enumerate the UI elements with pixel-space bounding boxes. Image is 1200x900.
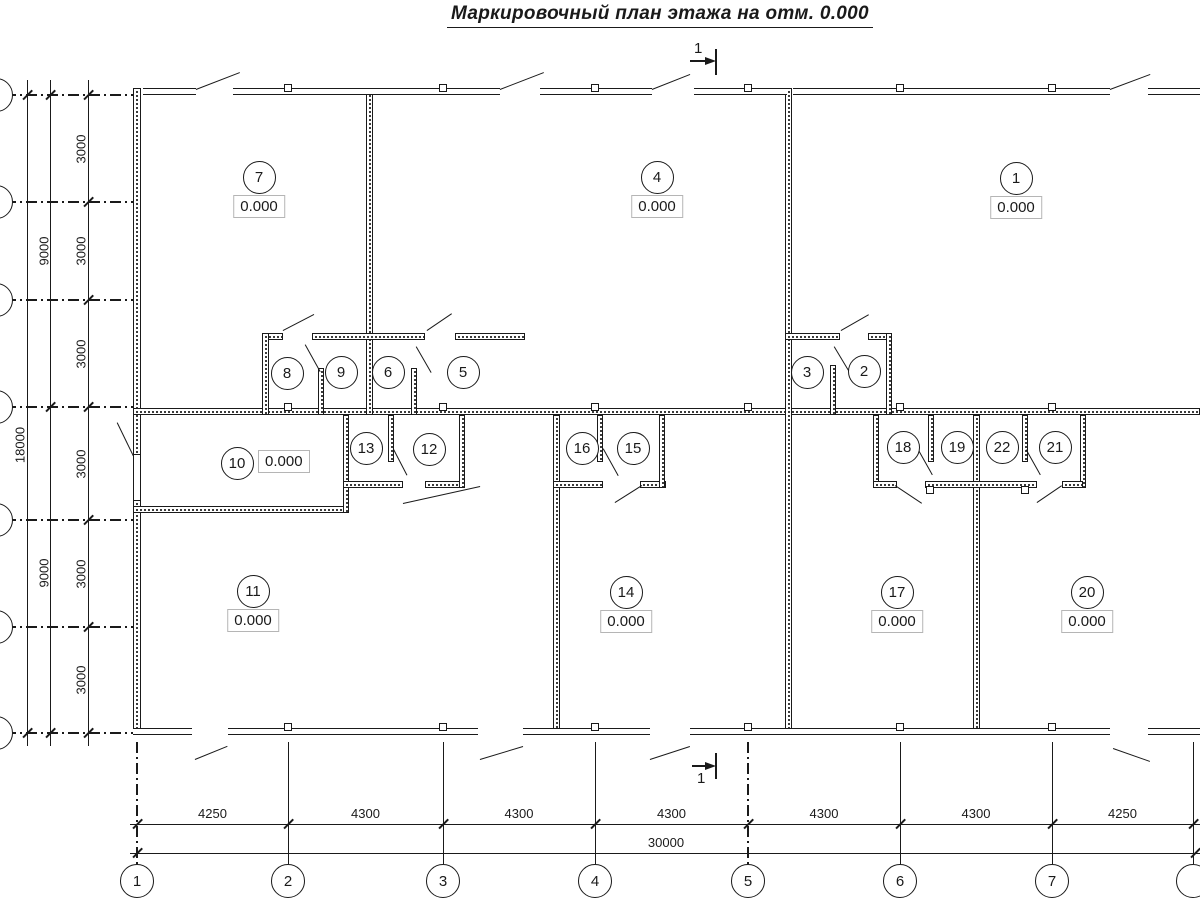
window-segment (133, 455, 141, 500)
row-axis-bubble-cut (0, 78, 13, 112)
wall-tie-square (439, 403, 447, 411)
window-segment (1148, 728, 1200, 735)
room-10-number-circle: 10 (221, 447, 254, 480)
wall-segment (366, 88, 373, 415)
section-mark-bottom-label: 1 (697, 770, 705, 787)
grid-row-line (5, 299, 133, 300)
dimension-label: 3000 (74, 449, 89, 478)
grid-row-line (5, 519, 133, 520)
dimension-label: 3000 (74, 237, 89, 266)
axis-line (595, 742, 596, 864)
axis-line (288, 742, 289, 864)
wall-segment (459, 415, 465, 488)
door-swing-line (1037, 485, 1063, 503)
dimension-label: 3000 (74, 559, 89, 588)
room-20-elevation: 0.000 (1061, 610, 1113, 633)
axis-bubble-1: 1 (120, 864, 154, 898)
row-axis-bubble-cut (0, 716, 13, 750)
wall-segment (873, 415, 879, 488)
room-7-number-circle: 7 (243, 161, 276, 194)
axis-line (136, 742, 137, 864)
dimension-total-label: 18000 (13, 427, 28, 463)
axis-line (747, 742, 748, 864)
wall-tie-square (896, 84, 904, 92)
wall-segment (318, 368, 324, 415)
room-12-number-circle: 12 (413, 433, 446, 466)
door-swing-line (283, 314, 315, 331)
wall-tie-square (591, 403, 599, 411)
wall-segment (785, 333, 840, 340)
door-swing-line (480, 746, 523, 760)
door-swing-line (116, 423, 133, 457)
axis-bubble-cut (1176, 864, 1200, 898)
axis-line (1052, 742, 1053, 864)
section-mark-top-label: 1 (694, 40, 702, 57)
wall-tie-square (896, 723, 904, 731)
grid-row-line (5, 626, 133, 627)
wall-tie-square (926, 486, 934, 494)
room-16-number-circle: 16 (566, 432, 599, 465)
room-17-elevation: 0.000 (871, 610, 923, 633)
window-segment (523, 728, 650, 735)
room-11-elevation: 0.000 (227, 609, 279, 632)
window-segment (133, 728, 192, 735)
room-14-elevation: 0.000 (600, 610, 652, 633)
room-7-elevation: 0.000 (233, 195, 285, 218)
door-swing-line (195, 746, 228, 760)
room-2-number-circle: 2 (848, 355, 881, 388)
wall-segment (262, 333, 269, 415)
dimension-line (130, 824, 1200, 825)
axis-bubble-6: 6 (883, 864, 917, 898)
door-swing-line (304, 345, 320, 373)
grid-row-line (5, 201, 133, 202)
room-18-number-circle: 18 (887, 431, 920, 464)
wall-segment (973, 415, 980, 735)
wall-segment (133, 506, 346, 513)
room-14-number-circle: 14 (610, 576, 643, 609)
room-8-number-circle: 8 (271, 357, 304, 390)
wall-segment (1022, 415, 1028, 462)
dimension-line (130, 853, 1200, 854)
wall-segment (597, 415, 603, 462)
dimension-label: 4250 (1108, 806, 1137, 821)
wall-tie-square (439, 84, 447, 92)
room-9-number-circle: 9 (325, 356, 358, 389)
wall-segment (886, 333, 892, 415)
wall-tie-square (1048, 723, 1056, 731)
wall-segment (133, 88, 141, 455)
dimension-label: 9000 (37, 237, 52, 266)
window-segment (1148, 88, 1200, 95)
wall-tie-square (1021, 486, 1029, 494)
wall-tie-square (744, 403, 752, 411)
room-3-number-circle: 3 (791, 356, 824, 389)
dimension-label: 3000 (74, 666, 89, 695)
axis-line (900, 742, 901, 864)
room-15-number-circle: 15 (617, 432, 650, 465)
room-10-elevation: 0.000 (258, 450, 310, 473)
drawing-title: Маркировочный план этажа на отм. 0.000 (447, 3, 873, 28)
wall-tie-square (284, 403, 292, 411)
row-axis-bubble-cut (0, 185, 13, 219)
dimension-label: 3000 (74, 339, 89, 368)
door-swing-line (500, 72, 544, 90)
dimension-total-label: 30000 (648, 835, 684, 850)
wall-segment (388, 415, 394, 462)
grid-row-line (5, 406, 133, 407)
dimension-label: 3000 (74, 134, 89, 163)
room-11-number-circle: 11 (237, 575, 270, 608)
dimension-label: 4250 (198, 806, 227, 821)
wall-segment (343, 415, 349, 513)
wall-segment (928, 415, 934, 462)
door-swing-line (415, 347, 431, 374)
wall-tie-square (1048, 403, 1056, 411)
floor-plan-canvas: Маркировочный план этажа на отм. 0.000 1… (0, 0, 1200, 900)
dimension-label: 4300 (962, 806, 991, 821)
door-swing-line (1110, 74, 1150, 90)
wall-tie-square (591, 723, 599, 731)
room-6-number-circle: 6 (372, 356, 405, 389)
wall-segment (343, 481, 403, 488)
wall-segment (133, 408, 1200, 415)
wall-tie-square (896, 403, 904, 411)
row-axis-bubble-cut (0, 610, 13, 644)
wall-tie-square (744, 84, 752, 92)
row-axis-bubble-cut (0, 283, 13, 317)
dimension-line (27, 80, 28, 746)
wall-segment (1062, 481, 1083, 488)
axis-bubble-2: 2 (271, 864, 305, 898)
room-21-number-circle: 21 (1039, 431, 1072, 464)
row-axis-bubble-cut (0, 390, 13, 424)
axis-line (443, 742, 444, 864)
wall-segment (785, 88, 792, 735)
room-20-number-circle: 20 (1071, 576, 1104, 609)
room-1-number-circle: 1 (1000, 162, 1033, 195)
row-axis-bubble-cut (0, 503, 13, 537)
door-swing-line (1113, 748, 1150, 762)
wall-tie-square (284, 84, 292, 92)
axis-bubble-5: 5 (731, 864, 765, 898)
wall-tie-square (439, 723, 447, 731)
door-swing-line (841, 314, 870, 331)
wall-segment (873, 481, 897, 488)
room-22-number-circle: 22 (986, 431, 1019, 464)
axis-bubble-4: 4 (578, 864, 612, 898)
wall-segment (830, 365, 836, 415)
door-swing-line (650, 746, 690, 760)
dimension-label: 4300 (505, 806, 534, 821)
section-arrow-bar (715, 49, 717, 75)
room-5-number-circle: 5 (447, 356, 480, 389)
wall-segment (659, 415, 665, 488)
door-swing-line (427, 313, 453, 331)
window-segment (143, 88, 196, 95)
door-swing-line (895, 485, 923, 504)
wall-segment (553, 415, 560, 735)
axis-bubble-3: 3 (426, 864, 460, 898)
wall-segment (133, 500, 141, 735)
door-swing-line (602, 449, 618, 477)
wall-tie-square (591, 84, 599, 92)
window-segment (233, 88, 500, 95)
wall-segment (455, 333, 525, 340)
axis-line (1193, 742, 1194, 864)
wall-segment (553, 481, 603, 488)
wall-segment (1080, 415, 1086, 488)
dimension-line (88, 80, 89, 746)
axis-bubble-7: 7 (1035, 864, 1069, 898)
room-4-number-circle: 4 (641, 161, 674, 194)
section-arrow-bar (715, 753, 717, 779)
window-segment (793, 88, 1110, 95)
window-segment (694, 88, 787, 95)
dimension-label: 4300 (351, 806, 380, 821)
door-swing-line (615, 485, 643, 503)
wall-segment (411, 368, 417, 415)
wall-tie-square (744, 723, 752, 731)
dimension-line (50, 80, 51, 746)
wall-tie-square (284, 723, 292, 731)
dimension-label: 4300 (810, 806, 839, 821)
door-swing-line (403, 486, 480, 504)
door-swing-line (652, 74, 691, 90)
room-19-number-circle: 19 (941, 431, 974, 464)
dimension-label: 9000 (37, 559, 52, 588)
room-1-elevation: 0.000 (990, 196, 1042, 219)
wall-segment (312, 333, 425, 340)
wall-tie-square (1048, 84, 1056, 92)
door-swing-line (1025, 450, 1040, 476)
dimension-label: 4300 (657, 806, 686, 821)
room-13-number-circle: 13 (350, 432, 383, 465)
room-17-number-circle: 17 (881, 576, 914, 609)
door-swing-line (392, 449, 407, 477)
room-4-elevation: 0.000 (631, 195, 683, 218)
